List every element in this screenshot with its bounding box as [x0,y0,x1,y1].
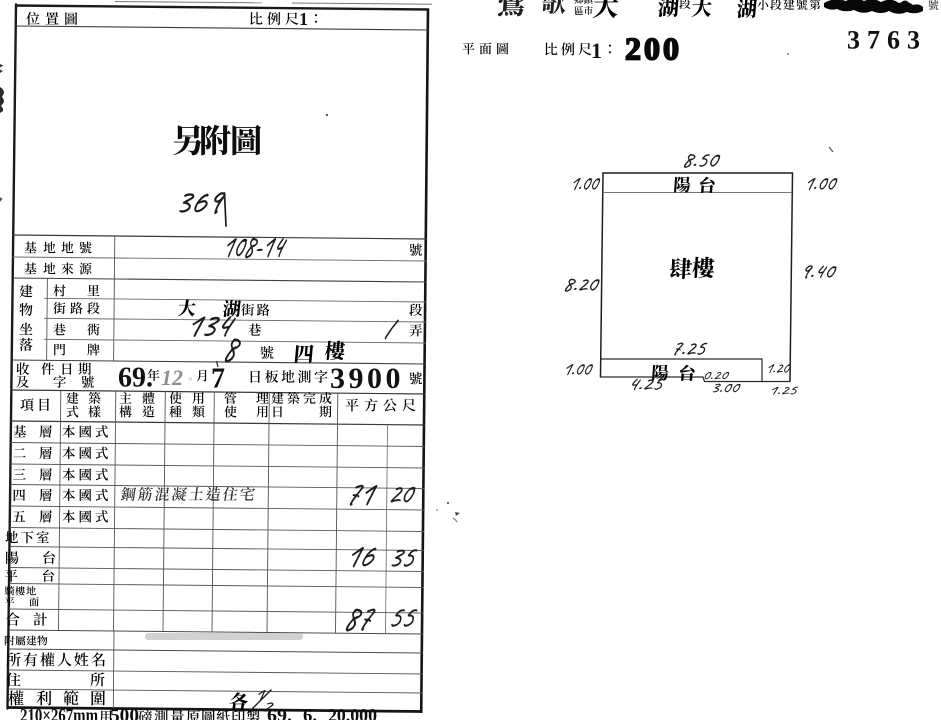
svg-text:6.: 6. [303,706,317,720]
svg-text:1: 1 [299,9,308,29]
svg-text:69.: 69. [118,363,153,394]
svg-text:500: 500 [110,706,139,720]
svg-text:3900: 3900 [330,362,404,395]
svg-text:69.: 69. [267,706,292,720]
svg-text:12: 12 [161,365,183,390]
svg-text:210×267mm: 210×267mm [20,706,98,720]
svg-text:1: 1 [591,38,602,63]
svg-text:20,000: 20,000 [328,706,377,720]
svg-text:7: 7 [211,364,225,395]
svg-text:3763: 3763 [847,26,927,55]
svg-text:200: 200 [625,31,682,67]
